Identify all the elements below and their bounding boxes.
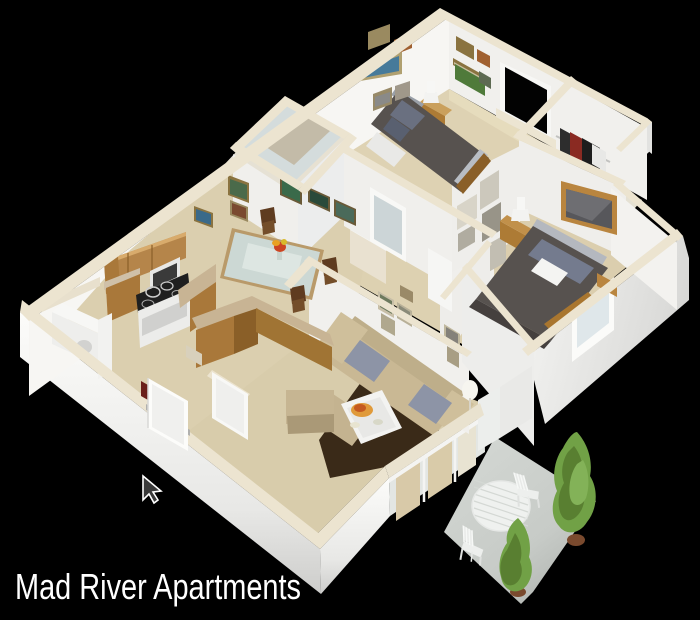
svg-text:Mad River Apartments: Mad River Apartments xyxy=(15,566,301,607)
